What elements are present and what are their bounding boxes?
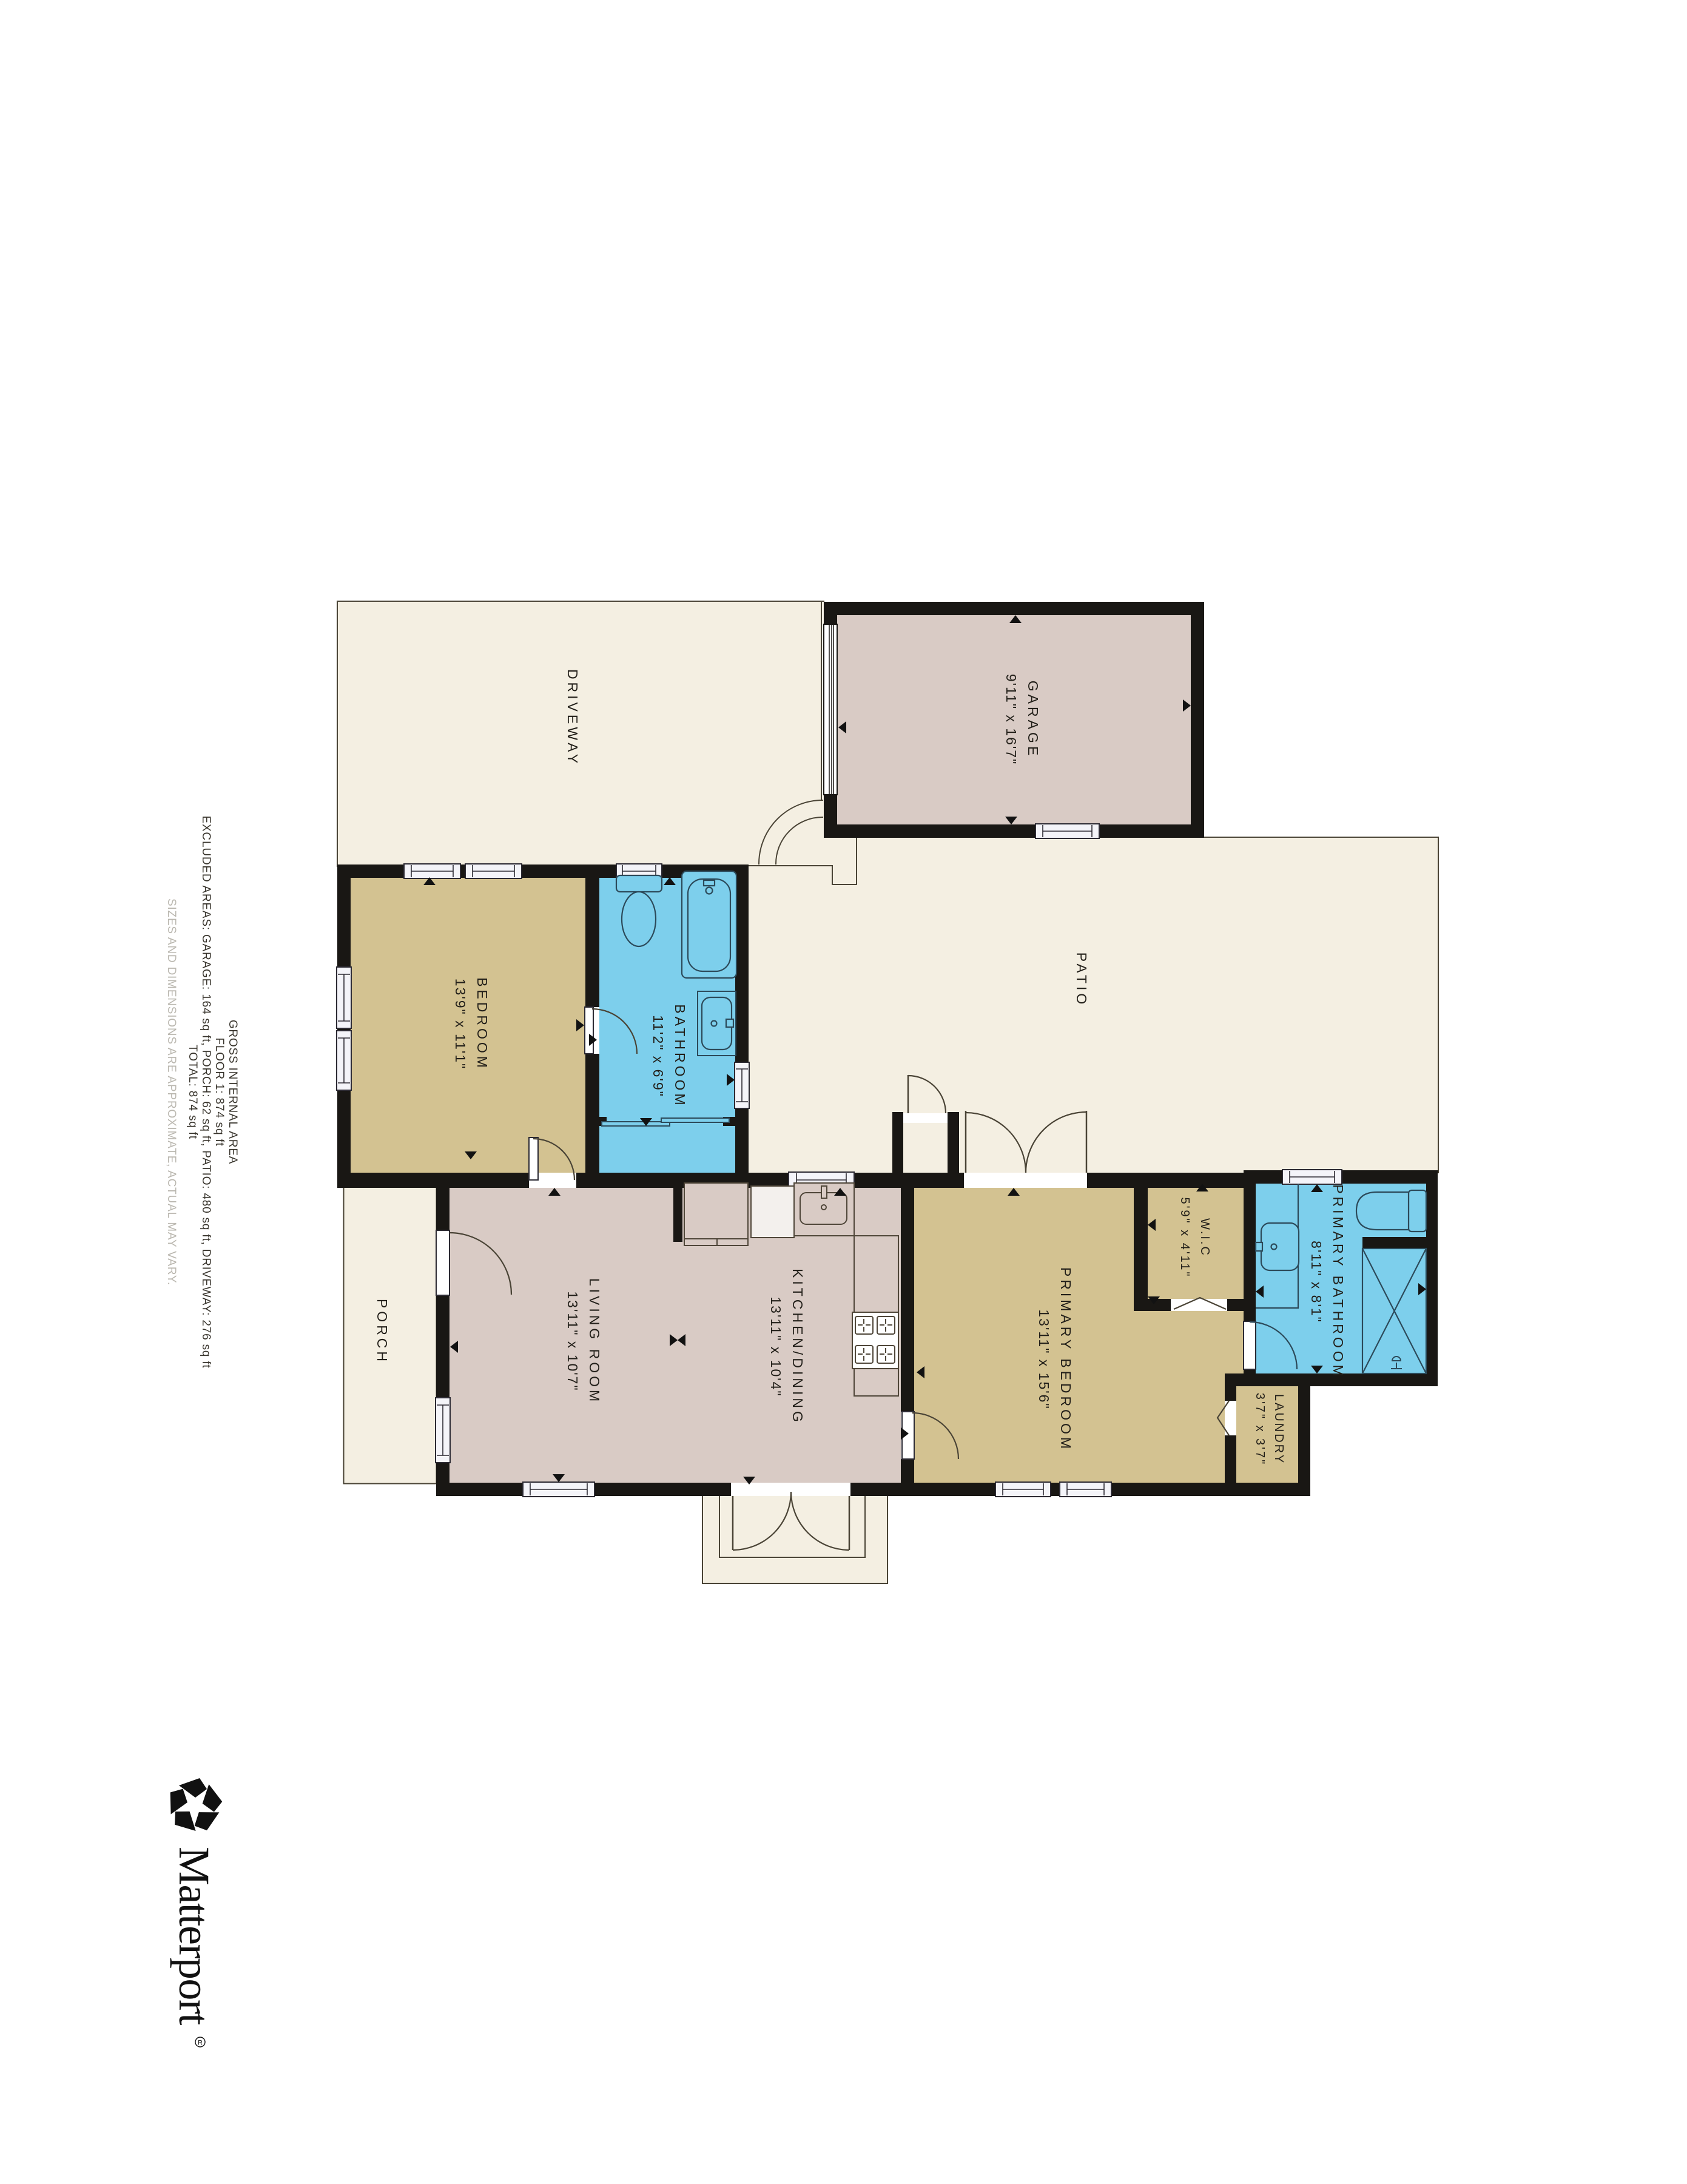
svg-text:PORCH: PORCH — [374, 1299, 390, 1364]
svg-text:BATHROOM: BATHROOM — [672, 1004, 688, 1108]
svg-text:BEDROOM: BEDROOM — [474, 977, 490, 1071]
svg-text:FLOOR 1: 874 sq ft: FLOOR 1: 874 sq ft — [213, 1037, 226, 1146]
svg-text:13'9" x 11'1": 13'9" x 11'1" — [453, 979, 468, 1070]
svg-text:GROSS INTERNAL AREA: GROSS INTERNAL AREA — [226, 1020, 239, 1164]
svg-text:3'7" x 3'7": 3'7" x 3'7" — [1253, 1393, 1267, 1466]
svg-text:PATIO: PATIO — [1074, 952, 1089, 1008]
svg-text:8'11" x 8'1": 8'11" x 8'1" — [1308, 1241, 1324, 1323]
svg-text:13'11" x 10'7": 13'11" x 10'7" — [565, 1291, 581, 1391]
svg-text:EXCLUDED AREAS: GARAGE: 164 sq: EXCLUDED AREAS: GARAGE: 164 sq ft, PORCH… — [200, 815, 212, 1368]
svg-text:13'11" x 15'6": 13'11" x 15'6" — [1036, 1309, 1052, 1409]
svg-text:DRIVEWAY: DRIVEWAY — [565, 669, 581, 766]
svg-text:11'2" x 6'9": 11'2" x 6'9" — [650, 1015, 666, 1097]
svg-text:5'9" x 4'11": 5'9" x 4'11" — [1178, 1197, 1191, 1278]
svg-text:W.I.C: W.I.C — [1198, 1218, 1211, 1257]
svg-text:LAUNDRY: LAUNDRY — [1272, 1394, 1285, 1464]
svg-text:R: R — [198, 2040, 203, 2047]
svg-text:LIVING ROOM: LIVING ROOM — [587, 1278, 602, 1404]
svg-text:KITCHEN/DINING: KITCHEN/DINING — [790, 1269, 806, 1425]
svg-text:Matterport: Matterport — [170, 1847, 218, 2025]
svg-text:9'11" x 16'7": 9'11" x 16'7" — [1003, 674, 1019, 765]
svg-text:PRIMARY BEDROOM: PRIMARY BEDROOM — [1058, 1267, 1074, 1452]
svg-text:TOTAL: 874 sq ft: TOTAL: 874 sq ft — [186, 1045, 199, 1139]
svg-text:SIZES AND DIMENSIONS ARE APPRO: SIZES AND DIMENSIONS ARE APPROXIMATE, AC… — [165, 898, 178, 1286]
svg-text:13'11" x 10'4": 13'11" x 10'4" — [768, 1296, 784, 1397]
svg-text:GARAGE: GARAGE — [1025, 681, 1041, 758]
svg-text:PRIMARY BATHROOM: PRIMARY BATHROOM — [1330, 1184, 1346, 1380]
